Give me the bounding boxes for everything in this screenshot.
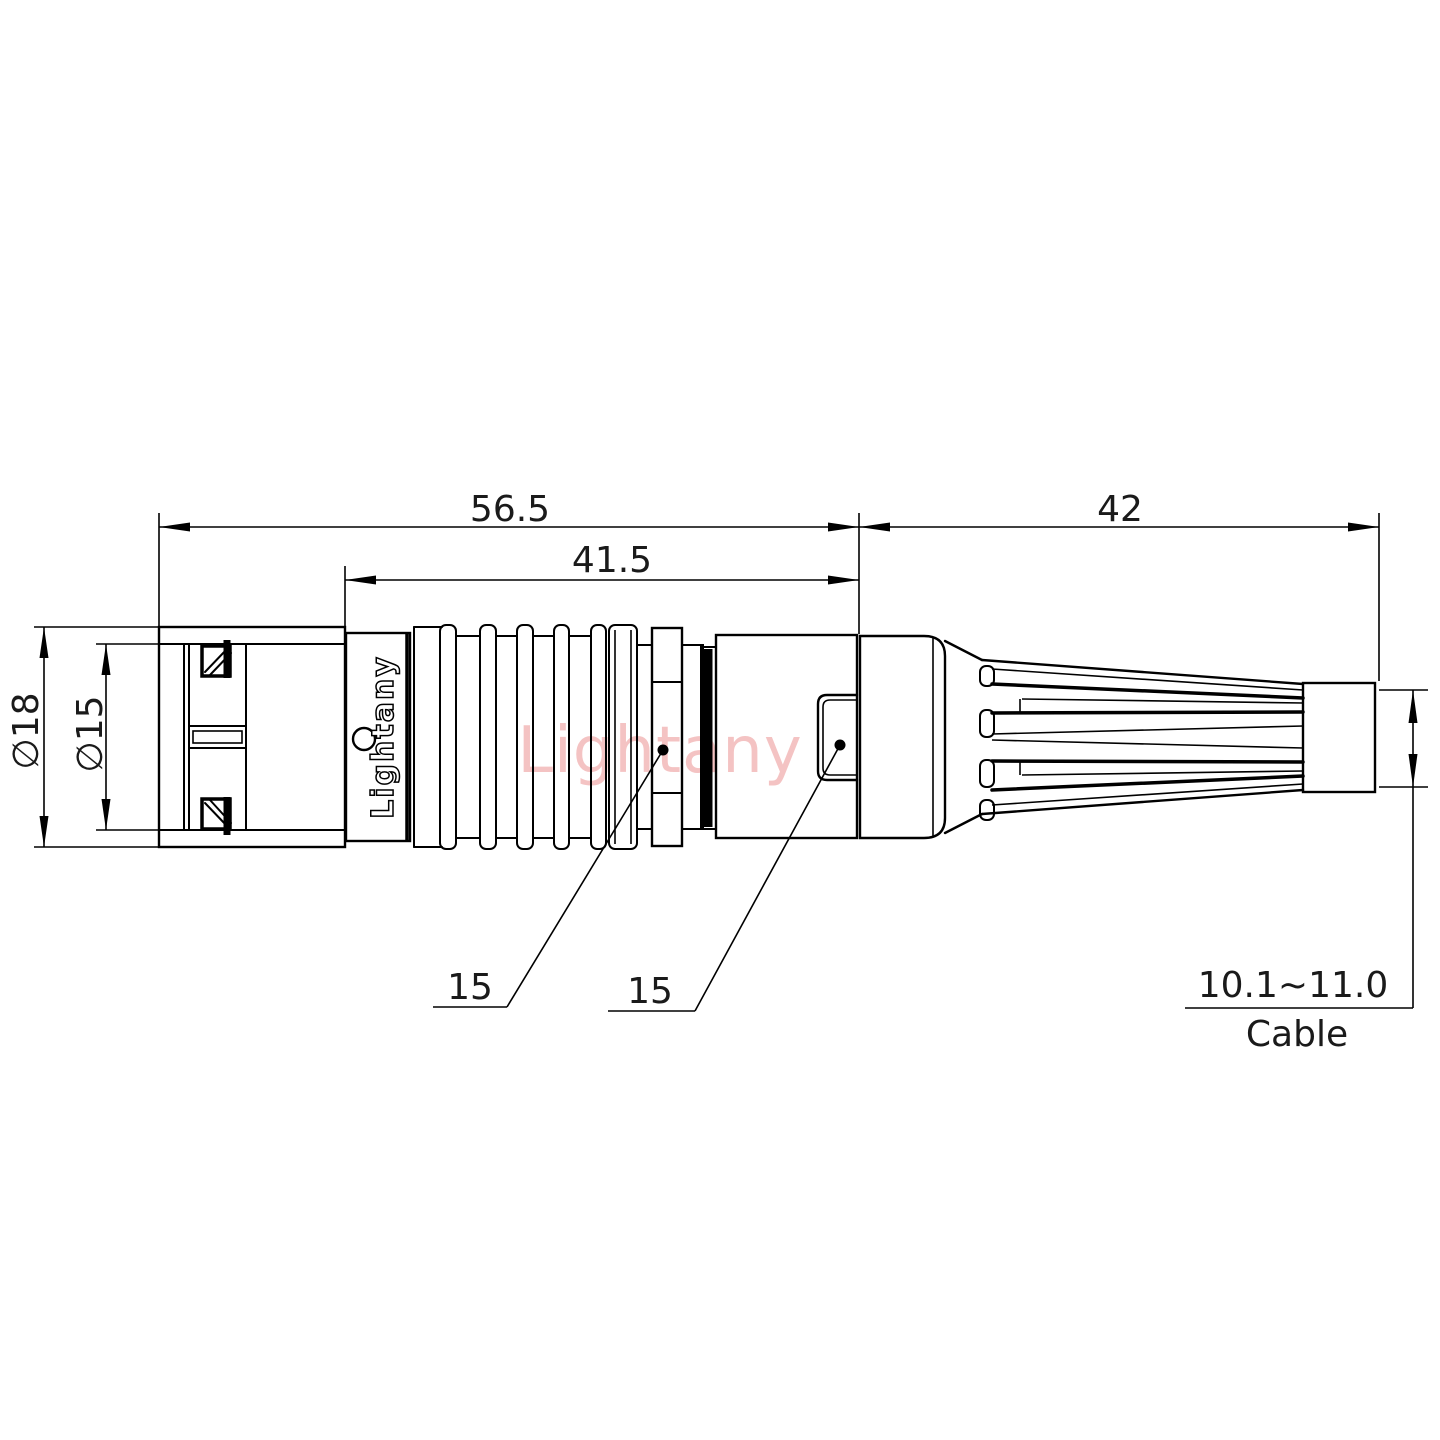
dimension-cable-diameter: 10.1~11.0 Cable	[1185, 690, 1428, 1055]
dim-label-outer-diameter: ∅18	[6, 692, 47, 769]
back-nut-section	[860, 636, 945, 838]
dimension-boot-length: 42	[859, 489, 1379, 681]
latch-cross-section-bottom	[202, 797, 231, 835]
brand-panel: Lightany	[346, 633, 410, 841]
dim-label-inner-diameter: ∅15	[70, 695, 111, 772]
cable-label: Cable	[1246, 1014, 1348, 1055]
dimension-inner-diameter: ∅15	[70, 644, 159, 830]
latch-window	[818, 695, 857, 780]
dim-label-boot-length: 42	[1097, 489, 1143, 530]
brand-text-vertical: Lightany	[366, 655, 401, 819]
dim-label-coupling-length: 41.5	[572, 540, 652, 581]
strain-relief-boot	[945, 641, 1375, 833]
dimension-overall-length: 56.5	[159, 489, 859, 634]
dim-label-cable-range: 10.1~11.0	[1198, 965, 1388, 1006]
o-ring-seal	[704, 649, 713, 827]
boot-tip	[1303, 683, 1375, 792]
connector-drawing: Lightany 56.5 41.5 42 ∅18	[0, 0, 1440, 1440]
dimension-coupling-length: 41.5	[345, 540, 859, 631]
front-plug-section	[159, 627, 345, 847]
latch-cross-section-top	[202, 640, 231, 678]
keyway-slot	[189, 726, 246, 748]
leader-label-right: 15	[627, 971, 673, 1012]
leader-label-left: 15	[447, 967, 493, 1008]
technical-drawing-page: Lightany 56.5 41.5 42 ∅18	[0, 0, 1440, 1440]
dim-label-overall-length: 56.5	[470, 489, 550, 530]
